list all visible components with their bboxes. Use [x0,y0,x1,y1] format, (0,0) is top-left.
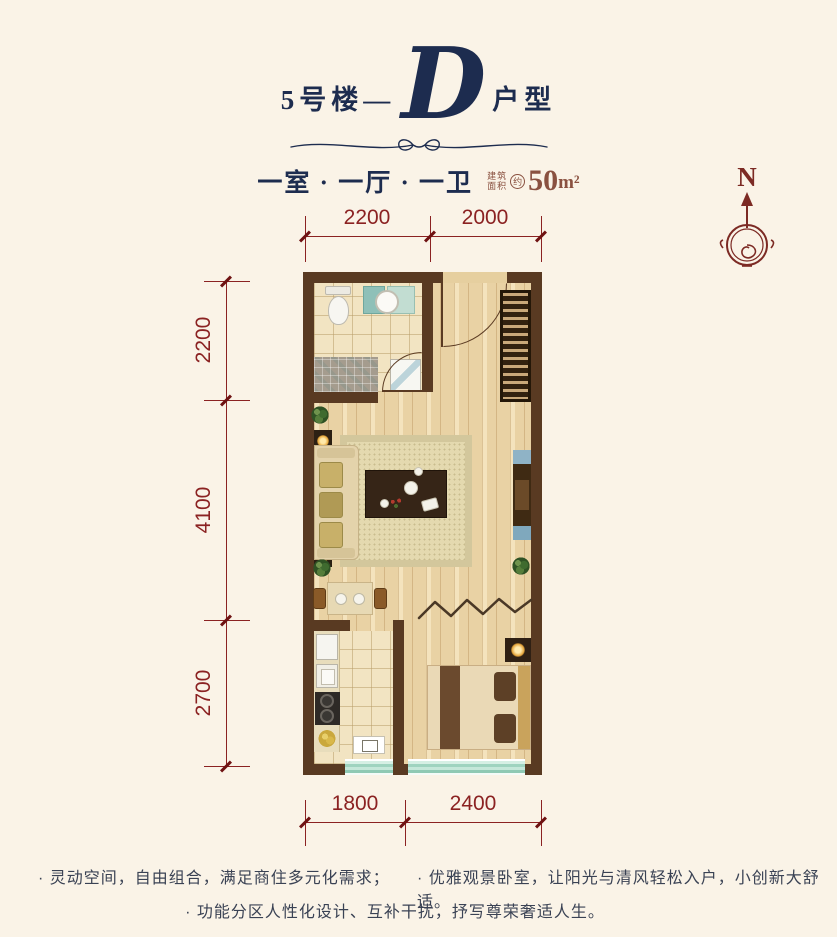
area-info: 建筑 面积 约 50 m² [487,167,580,195]
north-compass: N [705,164,789,272]
tv-cabinet-accent [513,450,531,464]
pillow-icon [494,672,516,701]
kitchen-window [345,759,393,775]
north-label: N [705,164,789,190]
pillow-icon [494,714,516,743]
chair-icon [374,588,387,609]
tv-cabinet-shelf [515,480,529,510]
sink-icon [375,290,399,314]
nightstand-lamp-icon [505,638,531,662]
fridge-icon [316,634,338,660]
toilet-icon [328,296,349,325]
bed-icon [427,665,531,750]
sofa-icon [314,445,359,560]
plate-icon [404,481,418,495]
dim-top-1: 2200 [337,206,397,230]
shower-area [314,357,378,392]
area-unit: m² [558,168,580,194]
approx-circle: 约 [510,174,525,189]
burner-icon [320,709,334,723]
kitchen-sink-icon [316,664,338,688]
floor-plan [303,272,542,775]
plate-icon [414,467,423,476]
basket-icon [317,729,337,748]
sofa-cushion [319,522,343,548]
kitchen-right-wall [393,620,404,764]
dim-top-ext [541,216,542,262]
dim-left-line [226,281,227,766]
compass-icon [705,190,789,270]
area-value: 50 [528,167,558,195]
dining-table-icon [327,582,373,615]
title-unit-letter: D [395,38,492,131]
feature-left: · 灵动空间，自由组合，满足商住多元化需求； [38,864,390,888]
plant-icon [312,558,332,578]
bathroom-door-leaf [382,390,422,392]
room-count-text: 一室 · 一厅 · 一卫 [257,163,473,199]
dim-top-line [305,236,542,237]
bedroom-window [408,759,525,775]
plate-icon [353,593,365,605]
sofa-cushion [319,492,343,518]
dim-top-ext [430,216,431,262]
page-title: 5号楼— D 户型 [0,38,837,131]
plant-icon [310,405,330,425]
stove-icon [315,692,340,725]
dim-left-3: 2700 [192,653,216,733]
dim-top-2: 2000 [455,206,515,230]
burner-icon [320,694,334,708]
dim-left-1: 2200 [192,300,216,380]
book-icon [421,497,439,512]
dim-left-2: 4100 [192,470,216,550]
bed-headboard [518,666,530,749]
sofa-armrest [317,548,355,558]
flourish-divider [289,134,549,156]
title-suffix: 户型 [492,78,556,131]
dim-top-ext [305,216,306,262]
bathroom-right-wall [422,283,433,392]
plate-icon [335,593,347,605]
toilet-icon [325,286,351,295]
bed-runner [440,666,460,749]
dim-bottom-line [305,822,542,823]
floorplan-page: 5号楼— D 户型 一室 · 一厅 · 一卫 建筑 面积 约 50 m² N [0,0,837,937]
kitchen-top-wall [314,620,350,631]
flower-decor-icon [388,497,404,509]
bathroom-bottom-wall [314,392,378,403]
entry-threshold [443,272,507,283]
area-label: 建筑 面积 [487,171,507,191]
title-building: 5号楼— [281,78,396,131]
paper-icon [353,736,385,754]
partition-zigzag-icon [417,594,533,622]
plant-icon [511,556,531,576]
wardrobe-icon [500,290,531,402]
sofa-armrest [317,448,355,458]
dim-bottom-1: 1800 [325,792,385,816]
coffee-table-icon [365,470,447,518]
entry-door-leaf [441,283,443,347]
feature-center: · 功能分区人性化设计、互补干扰，抒写尊荣奢适人生。 [0,898,790,922]
dim-bottom-2: 2400 [443,792,503,816]
tv-cabinet-icon [513,450,531,540]
tv-cabinet-accent [513,526,531,540]
chair-icon [313,588,326,609]
sofa-cushion [319,462,343,488]
